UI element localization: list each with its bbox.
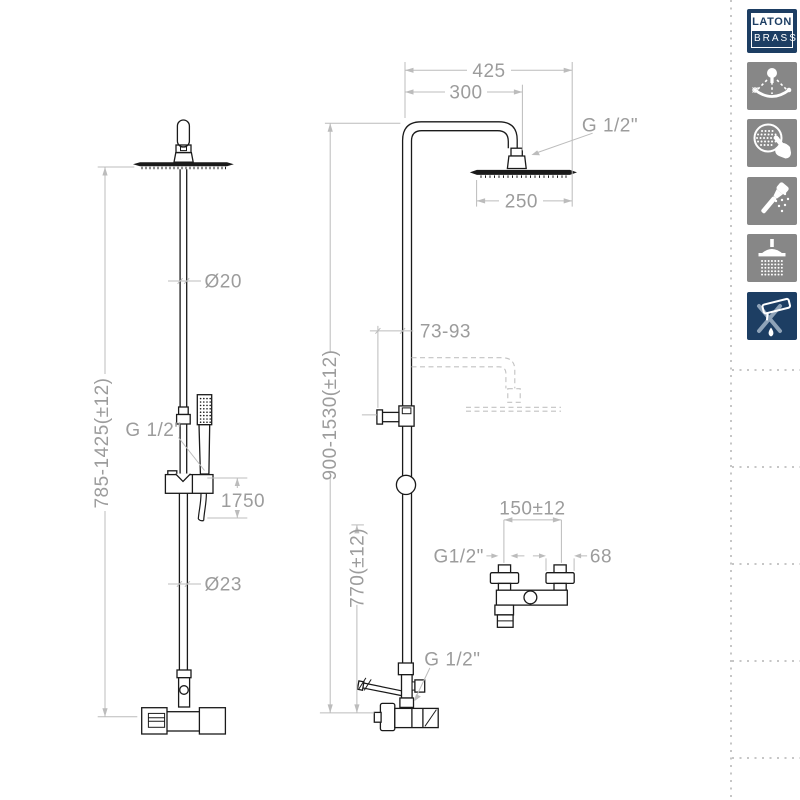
sidebar-row-divider <box>732 757 800 759</box>
front-shower-head <box>133 162 234 166</box>
feature-tile-rain-shower <box>747 234 797 282</box>
sidebar-row-divider <box>732 563 800 565</box>
dim-pipe-d23: Ø23 <box>205 575 242 596</box>
dim-head-250: 250 <box>505 192 538 213</box>
dim-escutcheon-68: 68 <box>590 546 612 567</box>
anti-limescale-icon <box>747 292 797 340</box>
rain-shower-head-icon <box>747 234 797 282</box>
dim-outlet-thread: G 1/2" <box>424 649 480 670</box>
side-view <box>358 122 578 731</box>
easy-clean-nozzles-icon <box>747 119 797 167</box>
dim-wall-distance: 73-93 <box>420 321 471 342</box>
side-slider <box>377 406 414 426</box>
brand-logo: LATON BRASS <box>747 9 797 53</box>
feature-tile-hand-shower <box>747 177 797 225</box>
dim-inlet-thread: G1/2" <box>433 546 483 567</box>
dim-side-height: 900-1530(±12) <box>320 349 341 480</box>
side-diverter-knob <box>396 475 415 494</box>
adjustable-shower-head-icon <box>747 62 797 110</box>
dim-outlet-height: 770(±12) <box>348 528 369 608</box>
dim-head-thread: G 1/2" <box>582 116 638 137</box>
feature-tile-adjustable <box>747 62 797 110</box>
front-view-dimensions <box>98 167 248 717</box>
side-phantom-position <box>412 358 562 412</box>
side-view-dimensions <box>320 62 593 713</box>
spec-sheet-page: Ø20 785-1425(±12) G 1/2" 1750 Ø23 <box>0 0 800 800</box>
front-hand-shower <box>197 395 211 521</box>
brand-name-bottom: BRASS <box>752 31 792 47</box>
side-view-labels: 425 300 G 1/2" 250 73-93 900-1530(±12) 7… <box>320 61 638 670</box>
dim-reach-300: 300 <box>449 83 482 104</box>
dim-handshower-thread: G 1/2" <box>125 420 181 441</box>
front-pipe-lower <box>179 493 187 670</box>
front-pipe-upper <box>180 169 187 407</box>
dim-pipe-d20: Ø20 <box>205 272 242 293</box>
side-mixer-valve <box>358 678 439 731</box>
sidebar-vertical-dotted-divider <box>730 0 732 800</box>
brand-name-top: LATON <box>752 14 792 31</box>
sidebar-row-divider <box>732 660 800 662</box>
dim-inlet-spacing: 150±12 <box>499 498 565 519</box>
side-shower-head <box>470 170 577 175</box>
front-view-labels: Ø20 785-1425(±12) G 1/2" 1750 Ø23 <box>92 272 265 596</box>
feature-tile-easy-clean <box>747 119 797 167</box>
mixer-detail-dimensions <box>486 517 587 571</box>
dim-reach-425: 425 <box>472 61 505 82</box>
dim-front-height: 785-1425(±12) <box>92 377 113 508</box>
mixer-body <box>496 590 567 605</box>
sidebar-row-divider <box>732 369 800 371</box>
hand-shower-icon <box>747 177 797 225</box>
dim-hose-length: 1750 <box>221 491 265 512</box>
mixer-detail-labels: 150±12 G1/2" 68 <box>433 498 612 567</box>
front-mixer-valve <box>142 708 226 734</box>
feature-tile-anti-limescale <box>747 292 797 340</box>
sidebar-row-divider <box>732 466 800 468</box>
front-top-connector <box>177 120 189 147</box>
front-slider-bracket <box>165 471 213 494</box>
mixer-detail-view <box>490 565 574 627</box>
technical-drawing: Ø20 785-1425(±12) G 1/2" 1750 Ø23 <box>0 0 800 800</box>
